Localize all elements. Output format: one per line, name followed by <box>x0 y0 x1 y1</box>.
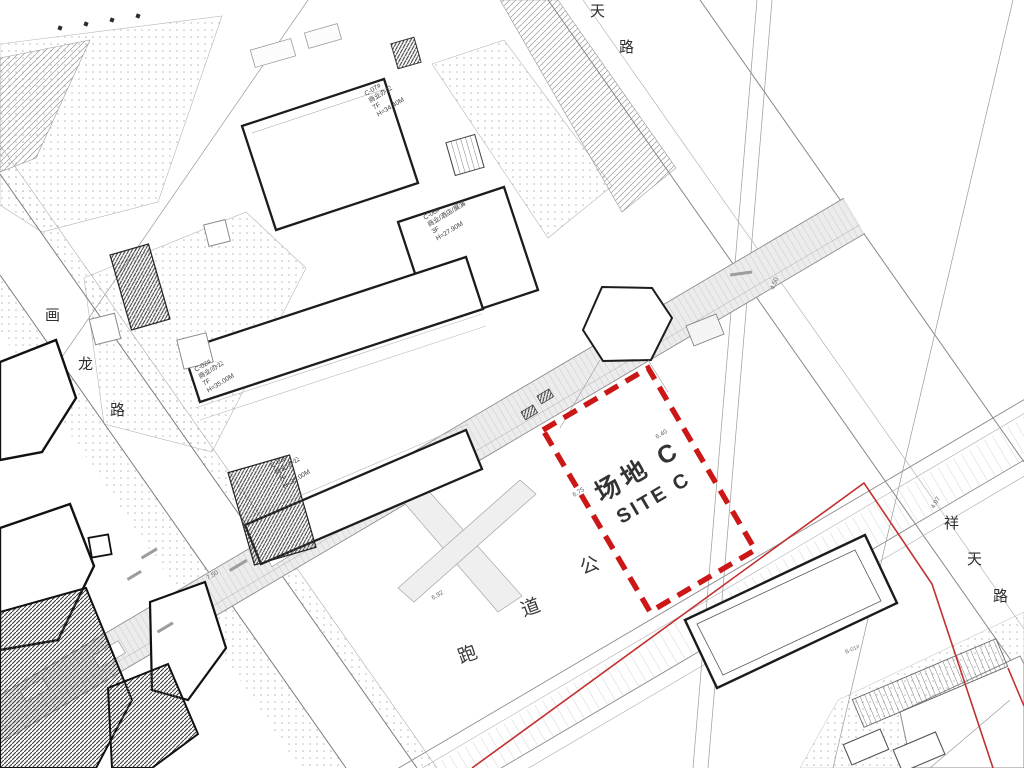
runway-park-char: 公 <box>577 553 602 579</box>
road-label-left-char: 画 <box>45 307 60 324</box>
core-block-top <box>391 37 421 69</box>
context-building-label: B-01# <box>844 644 861 656</box>
existing-building-left-1 <box>0 340 76 460</box>
road-label-left-char: 龙 <box>78 356 93 373</box>
runway-park-char: 跑 <box>455 641 480 668</box>
tree-marker <box>109 17 114 22</box>
tree-marker <box>57 25 62 30</box>
context-structure <box>250 39 295 68</box>
context-structure <box>304 24 341 49</box>
site-plan-drawing: 场地 C SITE C 天 路 画 龙 路 祥 天 路 跑 道 公 C-07# … <box>0 0 1024 768</box>
plaza-square <box>89 313 121 345</box>
tree-marker <box>83 21 88 26</box>
runway-park-char: 道 <box>518 594 543 621</box>
road-label-right-char: 天 <box>967 551 982 568</box>
tree-marker <box>135 13 140 18</box>
existing-building-left-3 <box>88 534 111 557</box>
road-label-right-char: 祥 <box>944 515 959 532</box>
micro-label <box>127 570 142 581</box>
spot-elevation: 6.92 <box>430 589 445 602</box>
road-label-top-char: 天 <box>590 3 605 20</box>
road-label-right-char: 路 <box>993 588 1008 605</box>
parking-block-top <box>446 135 484 176</box>
road-label-left-char: 路 <box>110 402 125 419</box>
site-plan-canvas: 场地 C SITE C 天 路 画 龙 路 祥 天 路 跑 道 公 C-07# … <box>0 0 1024 768</box>
plaza-square <box>204 220 231 247</box>
road-label-top-char: 路 <box>619 39 634 56</box>
